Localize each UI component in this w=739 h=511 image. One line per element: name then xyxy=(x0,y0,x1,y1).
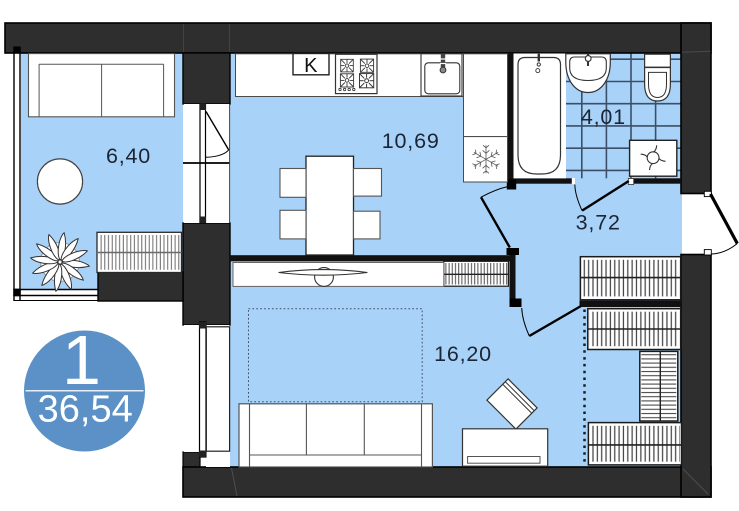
svg-text:36,54: 36,54 xyxy=(38,389,133,431)
svg-text:10,69: 10,69 xyxy=(382,129,440,153)
svg-text:4,01: 4,01 xyxy=(581,105,626,129)
svg-text:3,72: 3,72 xyxy=(576,211,621,235)
svg-text:K: K xyxy=(304,55,318,77)
svg-text:6,40: 6,40 xyxy=(106,144,151,168)
svg-text:16,20: 16,20 xyxy=(434,342,492,366)
svg-text:1: 1 xyxy=(62,321,101,399)
